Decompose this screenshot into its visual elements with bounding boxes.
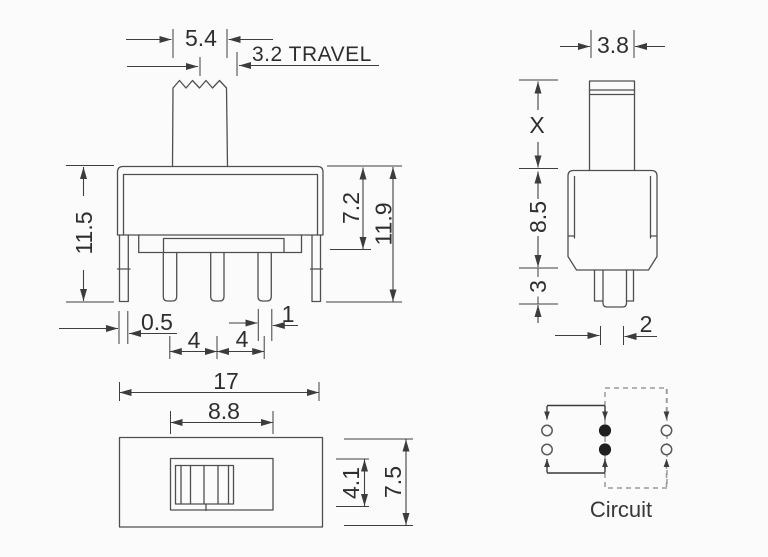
dim-label-travel: 3.2 TRAVEL — [252, 43, 372, 66]
front-knob-outline — [173, 81, 228, 167]
circuit-solid-links — [547, 406, 605, 474]
front-base-outline — [139, 235, 302, 253]
circuit-caption: Circuit — [590, 497, 652, 522]
dim-label-side-pin-width: 2 — [640, 311, 653, 337]
circuit-contact-open — [661, 425, 671, 435]
bottom-slot-outline — [171, 459, 274, 511]
dim-label-knob-width: 5.4 — [185, 25, 217, 51]
dim-side-pin-width-ticks — [601, 326, 624, 345]
dim-label-stem-height: X — [529, 112, 544, 138]
bottom-body-outline — [120, 438, 323, 528]
slide-switch-drawing: 5.4 3.2 TRAVEL 11.5 7.2 11.9 0.5 1 4 4 — [0, 0, 768, 557]
front-body-outline — [118, 167, 324, 236]
side-body-inner-lines — [568, 177, 657, 239]
side-body-outline — [568, 171, 657, 271]
circuit-contact-open — [542, 425, 552, 435]
front-left-leg — [118, 235, 131, 302]
front-body-inner-line — [124, 175, 318, 236]
side-pin-outline — [595, 270, 634, 307]
dim-label-pin-length: 3 — [525, 280, 551, 293]
dim-pin-width-ticks — [258, 309, 272, 341]
front-pin-3 — [258, 253, 271, 302]
circuit-diagram: Circuit — [542, 388, 672, 522]
side-view: 3.8 X 8.5 3 2 — [519, 30, 665, 345]
dim-label-side-body-height: 8.5 — [525, 201, 551, 233]
circuit-contact-open — [542, 444, 552, 454]
dim-label-height-left: 11.5 — [71, 211, 97, 254]
dim-label-leg-thickness: 0.5 — [141, 309, 173, 335]
dim-label-pitch-right: 4 — [236, 326, 249, 352]
dim-label-height-right: 11.9 — [371, 202, 397, 245]
dim-travel-ticks — [200, 52, 237, 76]
circuit-dashed-position-box — [605, 388, 667, 488]
dim-label-slot-length: 8.8 — [208, 398, 240, 424]
technical-drawing-page: 5.4 3.2 TRAVEL 11.5 7.2 11.9 0.5 1 4 4 — [0, 0, 768, 557]
circuit-contact-closed — [599, 444, 610, 455]
dim-label-slot-width: 4.1 — [338, 467, 364, 499]
front-right-leg — [311, 235, 323, 302]
dim-label-pitch-left: 4 — [188, 327, 201, 353]
front-view: 5.4 3.2 TRAVEL 11.5 7.2 11.9 0.5 1 4 4 — [59, 25, 402, 359]
dim-leg-ticks — [119, 311, 128, 344]
circuit-contact-closed — [599, 425, 610, 436]
side-stem-outline — [590, 81, 635, 171]
dim-pitch-ticks — [170, 336, 264, 359]
circuit-contact-open — [661, 444, 671, 454]
dim-label-body-height: 7.2 — [338, 192, 364, 224]
front-pin-2 — [211, 253, 224, 302]
dim-label-stem-width: 3.8 — [597, 32, 629, 58]
dim-label-body-width: 7.5 — [380, 466, 406, 498]
dim-label-pin-width: 1 — [282, 301, 295, 327]
dim-label-body-length: 17 — [213, 368, 239, 394]
bottom-view: 17 8.8 4.1 7.5 — [120, 368, 414, 527]
front-pin-1 — [163, 253, 176, 302]
